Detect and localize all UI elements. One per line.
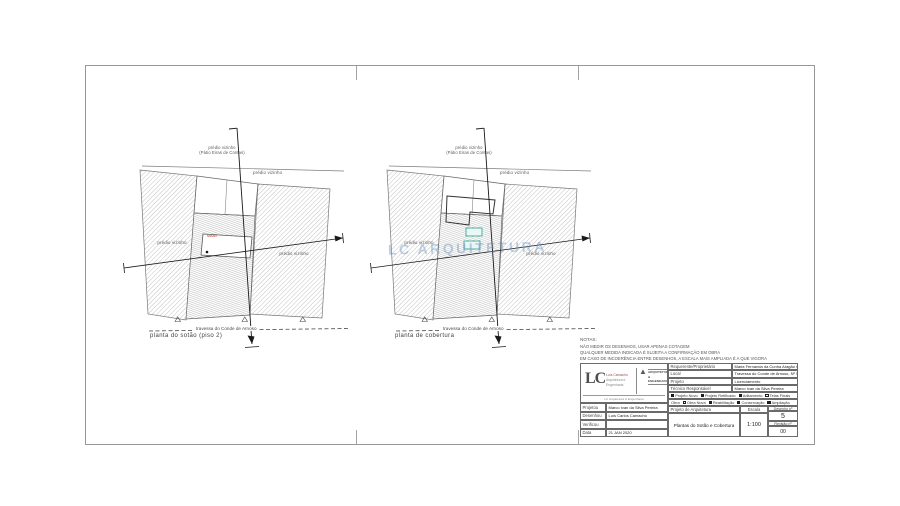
legend-project-type-row: Projeto Novo Projeto Retificado Aditamen… xyxy=(668,392,798,399)
firm-address-line: LC Arquitetura & Engenharia xyxy=(581,397,667,401)
field-label-local: Local xyxy=(668,370,732,377)
section-arrow-icon xyxy=(335,236,344,242)
triangle-logo-icon: ▲ xyxy=(639,368,648,377)
section-line-bottom-tick xyxy=(492,347,506,348)
section-line-top-tick xyxy=(476,128,484,129)
legend-item: Obra Nova xyxy=(683,400,706,405)
checkbox-icon xyxy=(767,401,770,404)
firm-watermark: LC ARQUITETURA xyxy=(388,238,547,257)
neighbor-label-left-inner: prédio vizinho xyxy=(148,240,196,245)
field-value-requerente: Maria Fernanda da Cunha Aragão Gales xyxy=(732,363,798,370)
legend-item: Projeto Novo xyxy=(671,393,698,398)
section-marker-dot xyxy=(206,251,209,254)
firm-name-line2: & ENGENHARIA xyxy=(648,375,667,384)
street-name-label: travessa do Conde de Arnoso xyxy=(194,326,259,331)
fold-mark xyxy=(356,430,357,444)
legend-item: Telas Finais xyxy=(765,393,790,398)
field-label-requerente: Requerente/Proprietário xyxy=(668,363,732,370)
survey-marker-icon xyxy=(547,317,553,322)
checkbox-icon xyxy=(709,401,712,404)
neighbor-label-line2: (Pátio Eiras de Contas) xyxy=(182,151,262,156)
section-arrow-icon xyxy=(495,336,502,345)
plan-caption-roof: planta de cobertura xyxy=(395,333,454,339)
sheet-number-value: 5 xyxy=(768,411,798,421)
neighbor-label-right-outer: prédio vizinho xyxy=(500,170,529,175)
legend-item: Ampliação xyxy=(767,400,789,405)
notes-block: NOTAS: NÃO MEDIR OS DESENHOS, USAR APENA… xyxy=(580,337,795,362)
firm-name: ARQUITETURA & ENGENHARIA xyxy=(648,369,667,385)
fold-mark xyxy=(578,66,579,80)
survey-marker-icon xyxy=(242,317,248,322)
fold-mark xyxy=(356,66,357,80)
field-label-data: Data xyxy=(580,429,606,438)
street-name-label: travessa do Conde de Arnoso xyxy=(441,326,506,331)
field-value-projetou: Marco Ivan da Silva Pereira xyxy=(606,403,668,412)
neighbor-label-right-outer: prédio vizinho xyxy=(253,170,282,175)
skylight-box xyxy=(466,228,482,236)
neighbor-label-line2: (Pátio Eiras de Contas) xyxy=(429,151,509,156)
checkbox-icon xyxy=(765,394,768,397)
field-value-local: Travessa do Conde de Arnoso, Nº 57 xyxy=(732,370,798,377)
boundary-line xyxy=(142,166,344,171)
field-label-projeto: Projeto xyxy=(668,378,732,385)
section-end-tick-left xyxy=(124,263,125,273)
checkbox-icon xyxy=(701,394,704,397)
firm-logo-box: LC Luís Camacho Arquitetura e Engenharia… xyxy=(580,363,668,403)
note-line: EM CASO DE INCOERÊNCIA ENTRE DESENHOS, A… xyxy=(580,356,795,362)
drawing-title: Plantas do Sotão e Cobertura xyxy=(668,413,740,437)
section-end-tick-left xyxy=(371,263,372,273)
logo-divider xyxy=(636,368,637,394)
logo-rule xyxy=(583,395,665,396)
checkbox-icon xyxy=(739,394,742,397)
scale-header: Escala xyxy=(740,406,768,413)
field-label-projetou: Projetou xyxy=(580,403,606,412)
neighbor-label-top: prédio vizinho (Pátio Eiras de Contas) xyxy=(182,146,262,156)
section-line-bottom-tick xyxy=(245,347,259,348)
room-area-label: sotão xyxy=(207,233,217,238)
plan-attic-drawing xyxy=(118,122,353,350)
field-value-verificou xyxy=(606,420,668,429)
field-label-verificou: Verificou xyxy=(580,420,606,429)
legend-prefix: Obra xyxy=(671,400,680,405)
checkbox-icon xyxy=(683,401,686,404)
title-block: LC Luís Camacho Arquitetura e Engenharia… xyxy=(580,363,798,437)
neighbor-label-top: prédio vizinho (Pátio Eiras de Contas) xyxy=(429,146,509,156)
firm-name-line1: ARQUITETURA xyxy=(648,370,667,375)
neighbor-label-right-inner: prédio vizinho xyxy=(270,251,318,256)
plan-roof-drawing xyxy=(365,122,600,350)
boundary-line xyxy=(389,166,591,171)
field-value-projeto: Licenciamento xyxy=(732,378,798,385)
section-arrow-icon xyxy=(582,236,591,242)
revision-value: 00 xyxy=(768,426,798,437)
notes-title: NOTAS: xyxy=(580,337,795,342)
checkbox-icon xyxy=(737,401,740,404)
field-value-data: 21 JAN 2020 xyxy=(606,429,668,438)
checkbox-icon xyxy=(671,394,674,397)
legend-item: Aditamento xyxy=(739,393,763,398)
firm-contact-line: Engenharia xyxy=(606,383,634,388)
section-arrow-icon xyxy=(248,336,255,345)
field-label-tecnico: Técnico Responsável xyxy=(668,385,732,392)
firm-contact-lines: Luís Camacho Arquitetura e Engenharia xyxy=(606,373,634,388)
fold-mark xyxy=(578,430,579,444)
firm-logo-initials: LC xyxy=(585,370,605,388)
survey-marker-icon xyxy=(489,317,495,322)
field-value-desenhou: Luís Carlos Camacho xyxy=(606,412,668,421)
legend-item: Projeto Retificado xyxy=(701,393,736,398)
legend-work-type-row: Obra Obra Nova Reabilitação Conservação … xyxy=(668,399,798,406)
plan-caption-attic: planta do sotão (piso 2) xyxy=(150,333,222,339)
field-value-tecnico: Marco Ivan da Silva Pereira xyxy=(732,385,798,392)
field-label-desenhou: Desenhou xyxy=(580,412,606,421)
legend-item: Reabilitação xyxy=(709,400,735,405)
project-type-header: Projeto de Arquitetura xyxy=(668,406,740,413)
subject-building-strip xyxy=(186,213,255,319)
legend-item: Conservação xyxy=(737,400,764,405)
survey-marker-icon xyxy=(300,317,306,322)
section-line-top-tick xyxy=(229,128,237,129)
scale-value: 1:100 xyxy=(740,413,768,437)
